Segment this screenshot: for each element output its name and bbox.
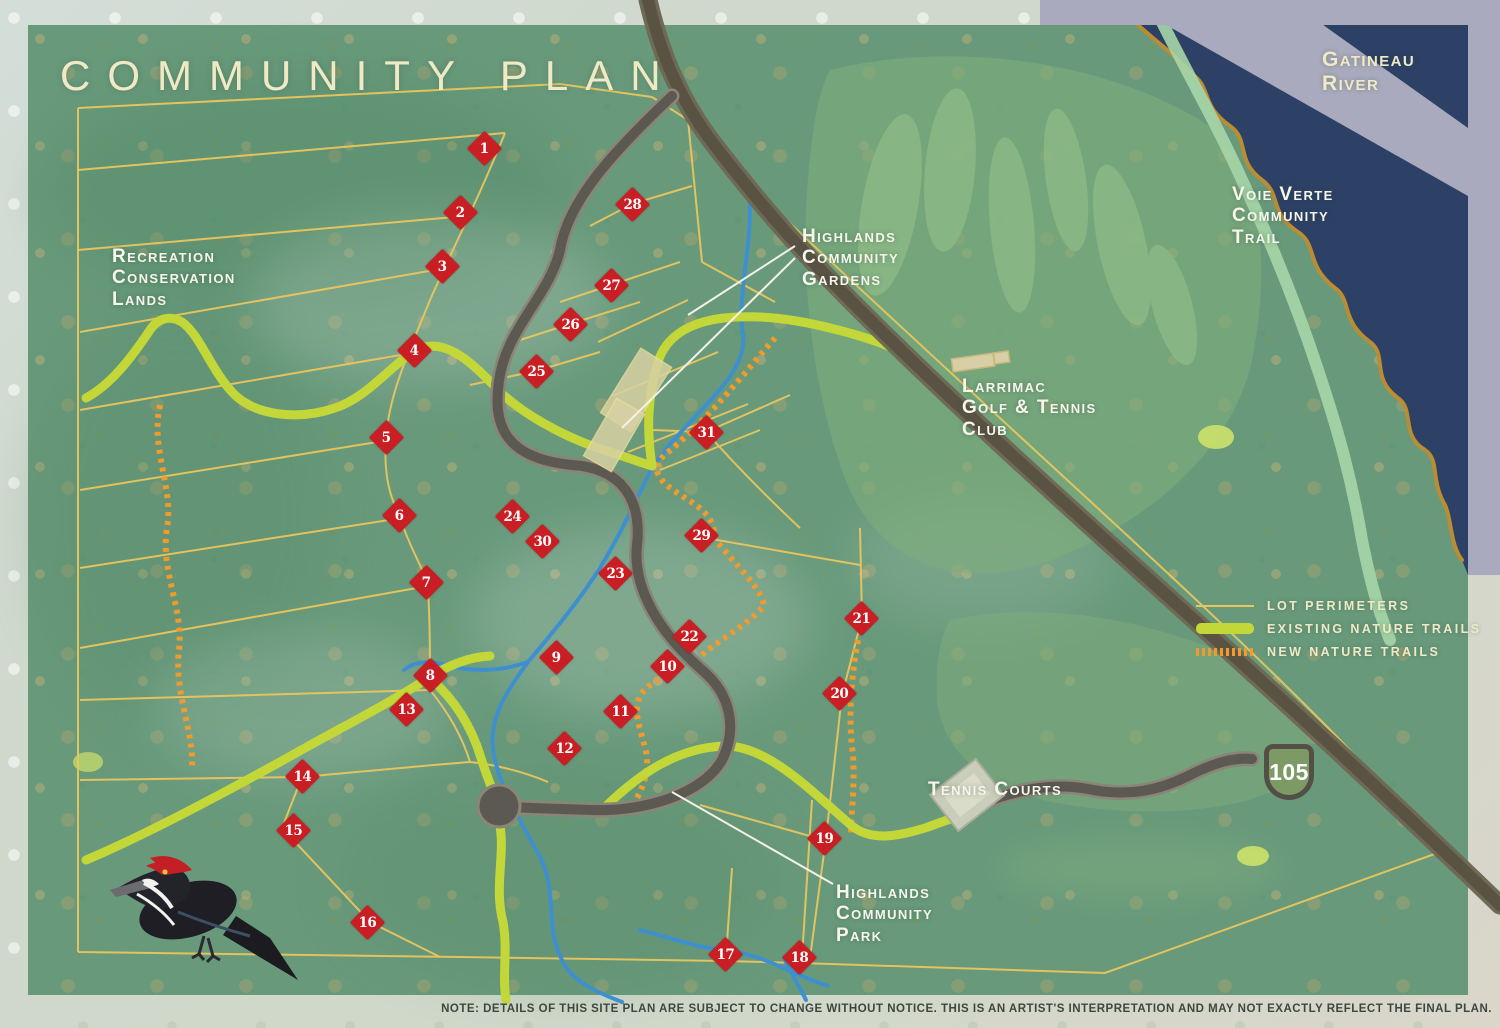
label-voie-verte-trail: Voie Verte Community Trail xyxy=(1232,184,1334,248)
highway-105-shield: 105 xyxy=(1264,744,1314,800)
map-base xyxy=(28,25,1468,995)
community-plan-map: COMMUNITY PLAN Gatineau River Voie Verte… xyxy=(0,0,1500,1028)
legend-item-lot-perimeters: LOT PERIMETERS xyxy=(1196,598,1481,613)
label-highlands-community-gardens: Highlands Community Gardens xyxy=(802,226,899,290)
legend-item-existing-trails: EXISTING NATURE TRAILS xyxy=(1196,621,1481,636)
existing-trail-swatch xyxy=(1196,623,1254,634)
label-highlands-community-park: Highlands Community Park xyxy=(836,882,933,946)
label-larrimac-golf-tennis-club: Larrimac Golf & Tennis Club xyxy=(962,376,1097,440)
label-gatineau-river: Gatineau River xyxy=(1322,48,1415,95)
legend-label: EXISTING NATURE TRAILS xyxy=(1267,622,1481,636)
legend-label: LOT PERIMETERS xyxy=(1267,599,1410,613)
label-tennis-courts: Tennis Courts xyxy=(928,779,1062,800)
map-legend: LOT PERIMETERS EXISTING NATURE TRAILS NE… xyxy=(1196,598,1481,667)
new-trail-swatch xyxy=(1196,648,1254,656)
page-title: COMMUNITY PLAN xyxy=(60,52,678,100)
lot-perimeter-swatch xyxy=(1196,605,1254,607)
legend-label: NEW NATURE TRAILS xyxy=(1267,645,1440,659)
legend-item-new-trails: NEW NATURE TRAILS xyxy=(1196,644,1481,659)
disclaimer-note: NOTE: DETAILS OF THIS SITE PLAN ARE SUBJ… xyxy=(441,1003,1492,1015)
label-recreation-conservation-lands: Recreation Conservation Lands xyxy=(112,246,236,310)
